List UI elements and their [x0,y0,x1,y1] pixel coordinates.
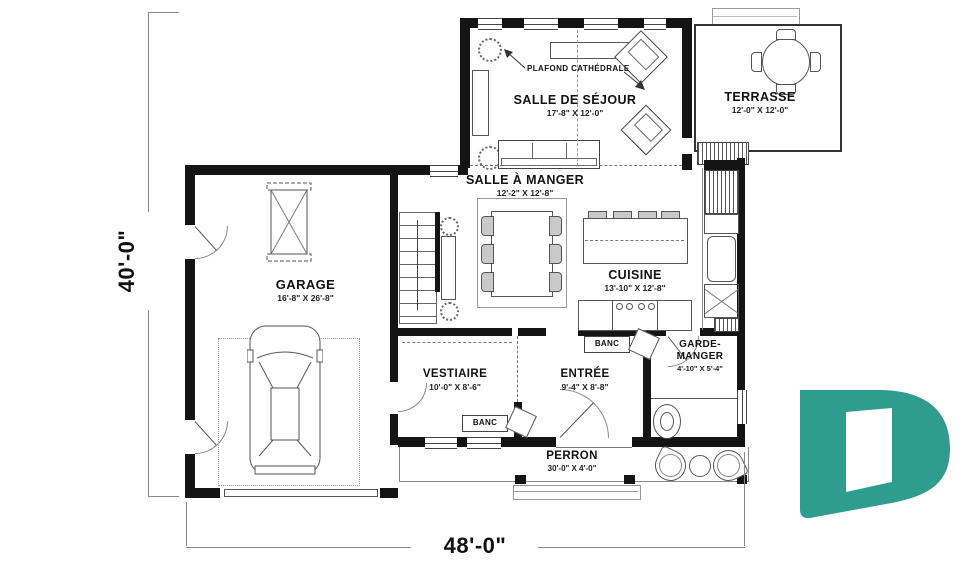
overall-width-label: 48'-0" [415,533,535,559]
perron-name: PERRON [530,450,614,462]
perron-steps [513,485,641,500]
staircase [399,212,437,324]
terrasse-step-top-line [713,16,797,17]
vestiaire-name: VESTIAIRE [407,368,503,380]
kitchen-sink [707,236,736,282]
banc-vestiaire-label: BANC [462,415,508,432]
wall-sejour-right [682,18,692,138]
stove-burner [626,303,633,310]
vestiaire-entree-cased-opening [517,336,518,402]
dim-left-line-upper [148,12,149,212]
kitchen-cabinet [704,214,739,234]
terrasse-name: TERRASSE [712,90,808,104]
pantry-shelf [714,318,739,332]
stove-burner [638,303,645,310]
floor-plan: TERRASSE 12'-0" X 12'-0" PLAFOND CATHÉDR… [0,0,960,569]
sejour-name: SALLE DE SÉJOUR [495,93,655,107]
stair-rail [417,220,418,310]
dishwasher [704,284,739,318]
garde-manger-dims: 4'-10" X 5'-4" [660,364,740,373]
kitchen-island [583,218,688,264]
garde-manger-name-line1: GARDE- [662,339,738,350]
front-door-opening [556,437,632,448]
refrigerator [704,170,739,214]
garage-vestiaire-door-opening [390,382,398,414]
dining-chair [481,272,494,292]
dim-left-ext-bottom [149,496,179,497]
dining-table [491,211,553,297]
garage-storage-rack [266,182,312,262]
wall-sejour-left [460,20,470,168]
sejour-window-3 [584,18,618,30]
garage-door-panel [224,489,378,497]
kitchen-island-counter-line [585,240,684,241]
front-door-arc [560,389,609,438]
dining-chair [481,244,494,264]
dim-bottom-line-left [186,547,411,548]
sejour-dims: 17'-8" X 12'-0" [495,108,655,118]
garde-manger-name-line2: MANGER [662,351,738,362]
cathedral-edge-dashed [470,165,682,166]
perron-edge-bottom [399,481,749,482]
vestiaire-window-1 [425,437,457,449]
plant-buffet-bottom [440,302,459,321]
sejour-window-1 [478,18,502,30]
terrasse-round-table [762,38,810,86]
garage-name: GARAGE [248,277,363,292]
sejour-window-4 [644,18,666,30]
plant-sejour-top [478,38,502,62]
perron-side-table [689,455,711,477]
wall-entree-top-stub [518,328,546,336]
buffet [441,236,456,300]
dim-left-line-lower [148,310,149,497]
leader-arrow-left-icon [501,48,527,70]
stove-burner [616,303,623,310]
garde-manger-niche-divider [651,398,737,399]
terrasse-dims: 12'-0" X 12'-0" [712,105,808,115]
entree-name: ENTRÉE [542,368,628,380]
closet-rod [402,342,512,343]
perron-dims: 30'-0" X 4'-0" [530,464,614,473]
brand-logo [790,382,954,524]
cuisine-dims: 13'-10" X 12'-8" [585,283,685,293]
terrasse-wall-top [694,24,842,26]
brand-logo-path [800,390,950,518]
wall-main-top [185,165,468,175]
wall-sejour-right-stub [682,154,692,170]
terrasse-chair-right [810,52,821,72]
perron-chair-left [650,445,691,486]
salle-a-manger-name: SALLE À MANGER [445,173,605,187]
dim-bottom-ext-right [744,452,745,546]
terrasse-chair-left [751,52,762,72]
garage-dims: 16'-8" X 26'-8" [248,293,363,303]
cuisine-name: CUISINE [585,268,685,282]
powder-sink-basin [660,412,674,431]
dining-chair [549,272,562,292]
counter-right-edge [702,168,703,330]
perron-steps-line [514,491,638,492]
dining-chair [549,216,562,236]
banc-entree-label: BANC [584,336,630,353]
sejour-window-2 [524,18,558,30]
plafond-cathedrale-label: PLAFOND CATHÉDRALE [527,64,623,73]
dining-chair [549,244,562,264]
dining-chair [481,216,494,236]
garage-side-door-opening-2 [185,420,195,454]
wall-vestiaire-top [398,328,512,336]
sejour-side-table [472,70,489,136]
dim-bottom-ext-left [186,502,187,546]
pillow-vestiaire-icon [505,406,537,438]
perron-post [624,475,635,484]
salle-a-manger-dims: 12'-2" X 12'-8" [445,188,605,198]
perron-post [515,475,526,484]
dim-left-ext-top [149,12,179,13]
vestiaire-dims: 10'-0" X 8'-6" [407,382,503,392]
garage-side-door-opening-1 [185,225,195,259]
leader-arrow-right-icon [622,70,648,92]
overall-depth-label: 40'-0" [114,206,140,316]
terrasse-chair-top [776,29,796,40]
car [247,316,323,482]
entree-dims: 9'-4" X 8'-8" [542,382,628,392]
perron-edge-right [748,447,749,481]
perron-edge-left [399,447,400,481]
terrasse-wall-right [840,24,842,152]
stove-burner [648,303,655,310]
dim-bottom-line-right [538,547,745,548]
terrasse-wall-left [694,24,696,152]
vestiaire-window-2 [467,437,501,449]
garde-manger-window [737,390,747,424]
plant-buffet-top [440,217,459,236]
